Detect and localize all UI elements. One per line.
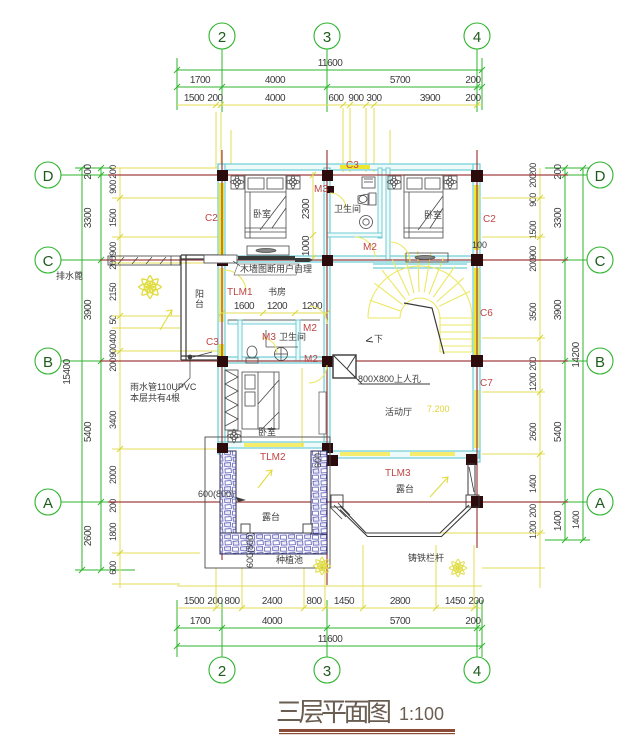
- svg-text:C6: C6: [480, 308, 493, 319]
- svg-text:M3: M3: [262, 332, 276, 343]
- svg-text:200: 200: [528, 504, 538, 518]
- svg-text:C: C: [595, 253, 606, 270]
- svg-text:TLM1: TLM1: [227, 287, 253, 298]
- svg-text:1500: 1500: [184, 93, 205, 104]
- svg-text:1500: 1500: [108, 208, 118, 227]
- svg-text:铸铁栏杆: 铸铁栏杆: [408, 552, 444, 563]
- svg-text:M2: M2: [363, 242, 377, 253]
- svg-text:2400: 2400: [262, 596, 283, 607]
- svg-text:5400: 5400: [553, 421, 564, 442]
- svg-text:1600: 1600: [234, 301, 255, 312]
- svg-text:木墙图断用户自理: 木墙图断用户自理: [240, 263, 312, 274]
- svg-text:4: 4: [473, 663, 481, 680]
- svg-text:5400: 5400: [83, 421, 94, 442]
- svg-text:1800: 1800: [108, 522, 118, 541]
- svg-text:200: 200: [108, 165, 118, 179]
- svg-text:4: 4: [473, 29, 481, 46]
- svg-text:1400: 1400: [553, 510, 564, 531]
- svg-text:卧室: 卧室: [253, 208, 271, 219]
- svg-text:M3: M3: [314, 184, 328, 195]
- svg-text:D: D: [43, 168, 54, 185]
- svg-text:三层平面图: 三层平面图: [276, 697, 390, 727]
- svg-text:1200: 1200: [267, 301, 288, 312]
- svg-text:800: 800: [306, 596, 322, 607]
- svg-text:2: 2: [218, 663, 226, 680]
- svg-text:3300: 3300: [553, 207, 564, 228]
- svg-text:1:100: 1:100: [399, 704, 444, 724]
- svg-text:1200: 1200: [528, 372, 538, 391]
- svg-text:600: 600: [313, 453, 323, 468]
- svg-text:1450: 1450: [334, 596, 355, 607]
- svg-text:卫生间: 卫生间: [279, 331, 306, 342]
- svg-text:排水蓖: 排水蓖: [56, 270, 83, 281]
- svg-text:种植池: 种植池: [276, 554, 303, 565]
- svg-text:7.200: 7.200: [427, 404, 450, 414]
- svg-text:书房: 书房: [268, 286, 286, 297]
- svg-text:2600: 2600: [83, 525, 94, 546]
- svg-text:1200: 1200: [528, 520, 538, 539]
- svg-text:800X800上人孔: 800X800上人孔: [358, 374, 421, 384]
- svg-text:台: 台: [195, 298, 204, 309]
- svg-text:A: A: [595, 495, 605, 512]
- svg-text:4000: 4000: [265, 75, 286, 86]
- svg-text:A: A: [43, 495, 53, 512]
- svg-text:200: 200: [108, 499, 118, 513]
- svg-text:下: 下: [374, 334, 383, 344]
- svg-text:1450: 1450: [445, 596, 466, 607]
- svg-text:3500: 3500: [528, 302, 538, 321]
- svg-text:B: B: [595, 354, 605, 371]
- svg-text:200: 200: [108, 358, 118, 372]
- svg-text:1000: 1000: [301, 235, 312, 256]
- svg-text:200: 200: [207, 596, 223, 607]
- svg-text:露台: 露台: [396, 483, 414, 494]
- svg-text:14200: 14200: [571, 341, 582, 367]
- svg-text:900: 900: [528, 193, 538, 207]
- svg-text:2300: 2300: [301, 198, 312, 219]
- svg-text:900: 900: [348, 93, 364, 104]
- svg-text:TLM2: TLM2: [260, 452, 286, 463]
- svg-text:雨水管110UPVC: 雨水管110UPVC: [130, 381, 197, 392]
- svg-text:卧室: 卧室: [424, 209, 442, 220]
- svg-text:200: 200: [207, 93, 223, 104]
- svg-text:1400: 1400: [571, 510, 581, 529]
- svg-text:1400: 1400: [528, 474, 538, 493]
- svg-text:600: 600: [328, 93, 344, 104]
- svg-text:200: 200: [83, 163, 94, 179]
- svg-text:5700: 5700: [390, 75, 411, 86]
- svg-text:1500: 1500: [528, 220, 538, 239]
- svg-text:1500: 1500: [184, 596, 205, 607]
- svg-text:B: B: [43, 354, 53, 371]
- svg-text:3900: 3900: [420, 93, 441, 104]
- svg-text:C7: C7: [480, 378, 493, 389]
- svg-text:200: 200: [528, 357, 538, 371]
- svg-text:卫生间: 卫生间: [334, 203, 361, 214]
- svg-text:200: 200: [465, 75, 481, 86]
- svg-text:900: 900: [108, 180, 118, 194]
- svg-text:15400: 15400: [62, 358, 73, 384]
- svg-text:D: D: [595, 168, 606, 185]
- svg-text:11600: 11600: [318, 634, 344, 645]
- svg-text:C2: C2: [483, 214, 496, 225]
- svg-text:4000: 4000: [265, 93, 286, 104]
- svg-text:3900: 3900: [553, 299, 564, 320]
- svg-text:600: 600: [108, 561, 118, 575]
- svg-text:TLM3: TLM3: [385, 468, 411, 479]
- svg-text:200: 200: [553, 163, 564, 179]
- svg-text:900: 900: [108, 242, 118, 256]
- svg-text:阳: 阳: [195, 289, 204, 299]
- svg-text:C: C: [43, 253, 54, 270]
- svg-text:2000: 2000: [108, 465, 118, 484]
- svg-text:100: 100: [472, 240, 487, 250]
- svg-text:400: 400: [108, 330, 118, 344]
- svg-text:4000: 4000: [262, 616, 283, 627]
- svg-text:1700: 1700: [190, 616, 211, 627]
- svg-text:3300: 3300: [83, 207, 94, 228]
- svg-text:2150: 2150: [108, 282, 118, 301]
- svg-text:3: 3: [323, 663, 331, 680]
- svg-text:露台: 露台: [262, 511, 280, 522]
- svg-text:600(800): 600(800): [198, 489, 234, 499]
- svg-text:2600: 2600: [528, 422, 538, 441]
- svg-text:C2: C2: [205, 213, 218, 224]
- svg-text:200: 200: [465, 616, 481, 627]
- svg-text:C3: C3: [206, 337, 219, 348]
- svg-text:600(800): 600(800): [245, 532, 255, 568]
- svg-text:卧室: 卧室: [258, 426, 276, 437]
- svg-text:3900: 3900: [83, 299, 94, 320]
- svg-text:活动厅: 活动厅: [385, 406, 412, 417]
- svg-text:900: 900: [528, 246, 538, 260]
- svg-text:M2: M2: [304, 354, 318, 365]
- svg-text:1700: 1700: [190, 75, 211, 86]
- svg-text:3400: 3400: [108, 410, 118, 429]
- svg-text:C3: C3: [346, 160, 359, 171]
- svg-text:2: 2: [218, 29, 226, 46]
- svg-text:200: 200: [528, 174, 538, 188]
- svg-text:5700: 5700: [390, 616, 411, 627]
- svg-text:3: 3: [323, 29, 331, 46]
- svg-text:本层共有4根: 本层共有4根: [130, 392, 180, 403]
- svg-text:800: 800: [224, 596, 240, 607]
- svg-text:11600: 11600: [318, 58, 344, 69]
- svg-text:2800: 2800: [390, 596, 411, 607]
